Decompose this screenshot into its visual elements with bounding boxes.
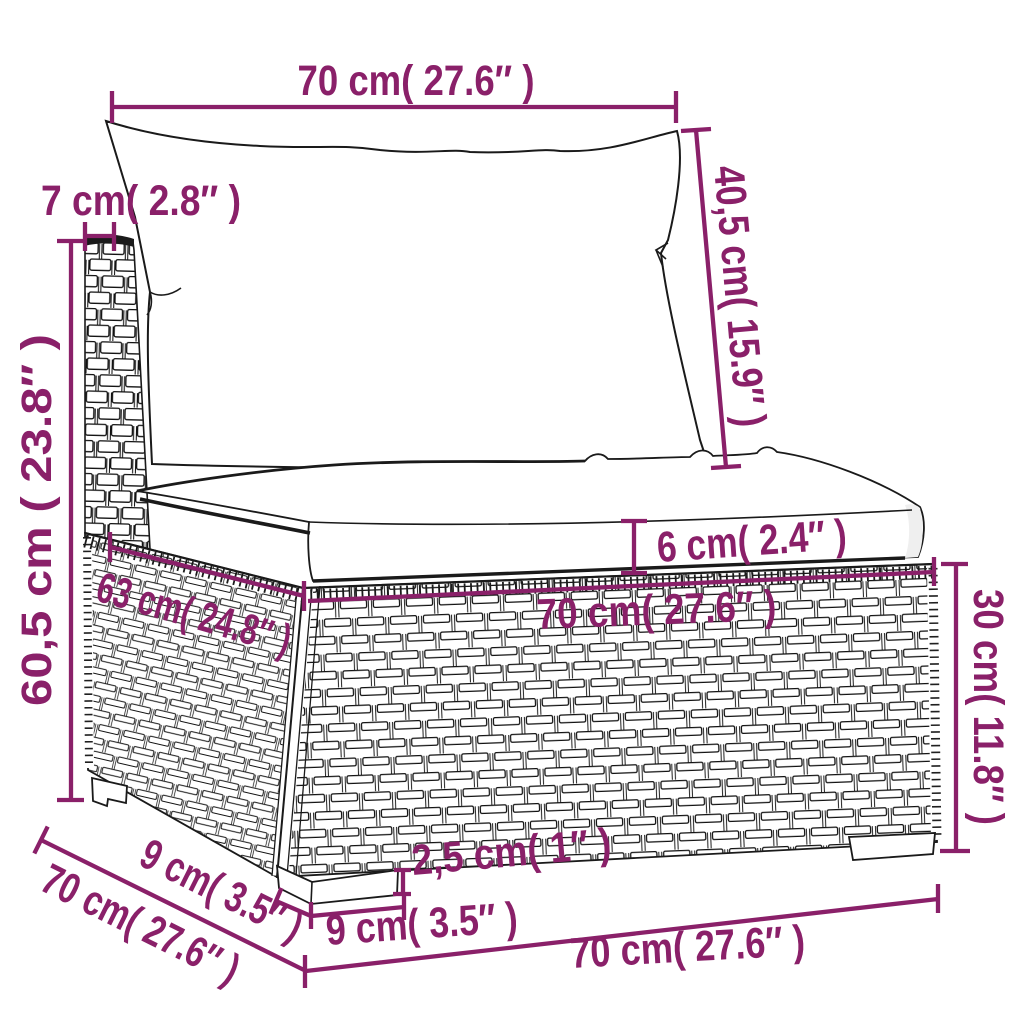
svg-text:30 cm( 11.8″ ): 30 cm( 11.8″ ) — [964, 589, 1012, 825]
svg-text:70 cm( 27.6″ ): 70 cm( 27.6″ ) — [298, 57, 535, 105]
svg-text:7 cm( 2.8″ ): 7 cm( 2.8″ ) — [41, 177, 241, 225]
svg-text:60,5 cm ( 23.8″ ): 60,5 cm ( 23.8″ ) — [13, 334, 61, 706]
svg-text:70 cm( 27.6″ ): 70 cm( 27.6″ ) — [536, 582, 778, 639]
